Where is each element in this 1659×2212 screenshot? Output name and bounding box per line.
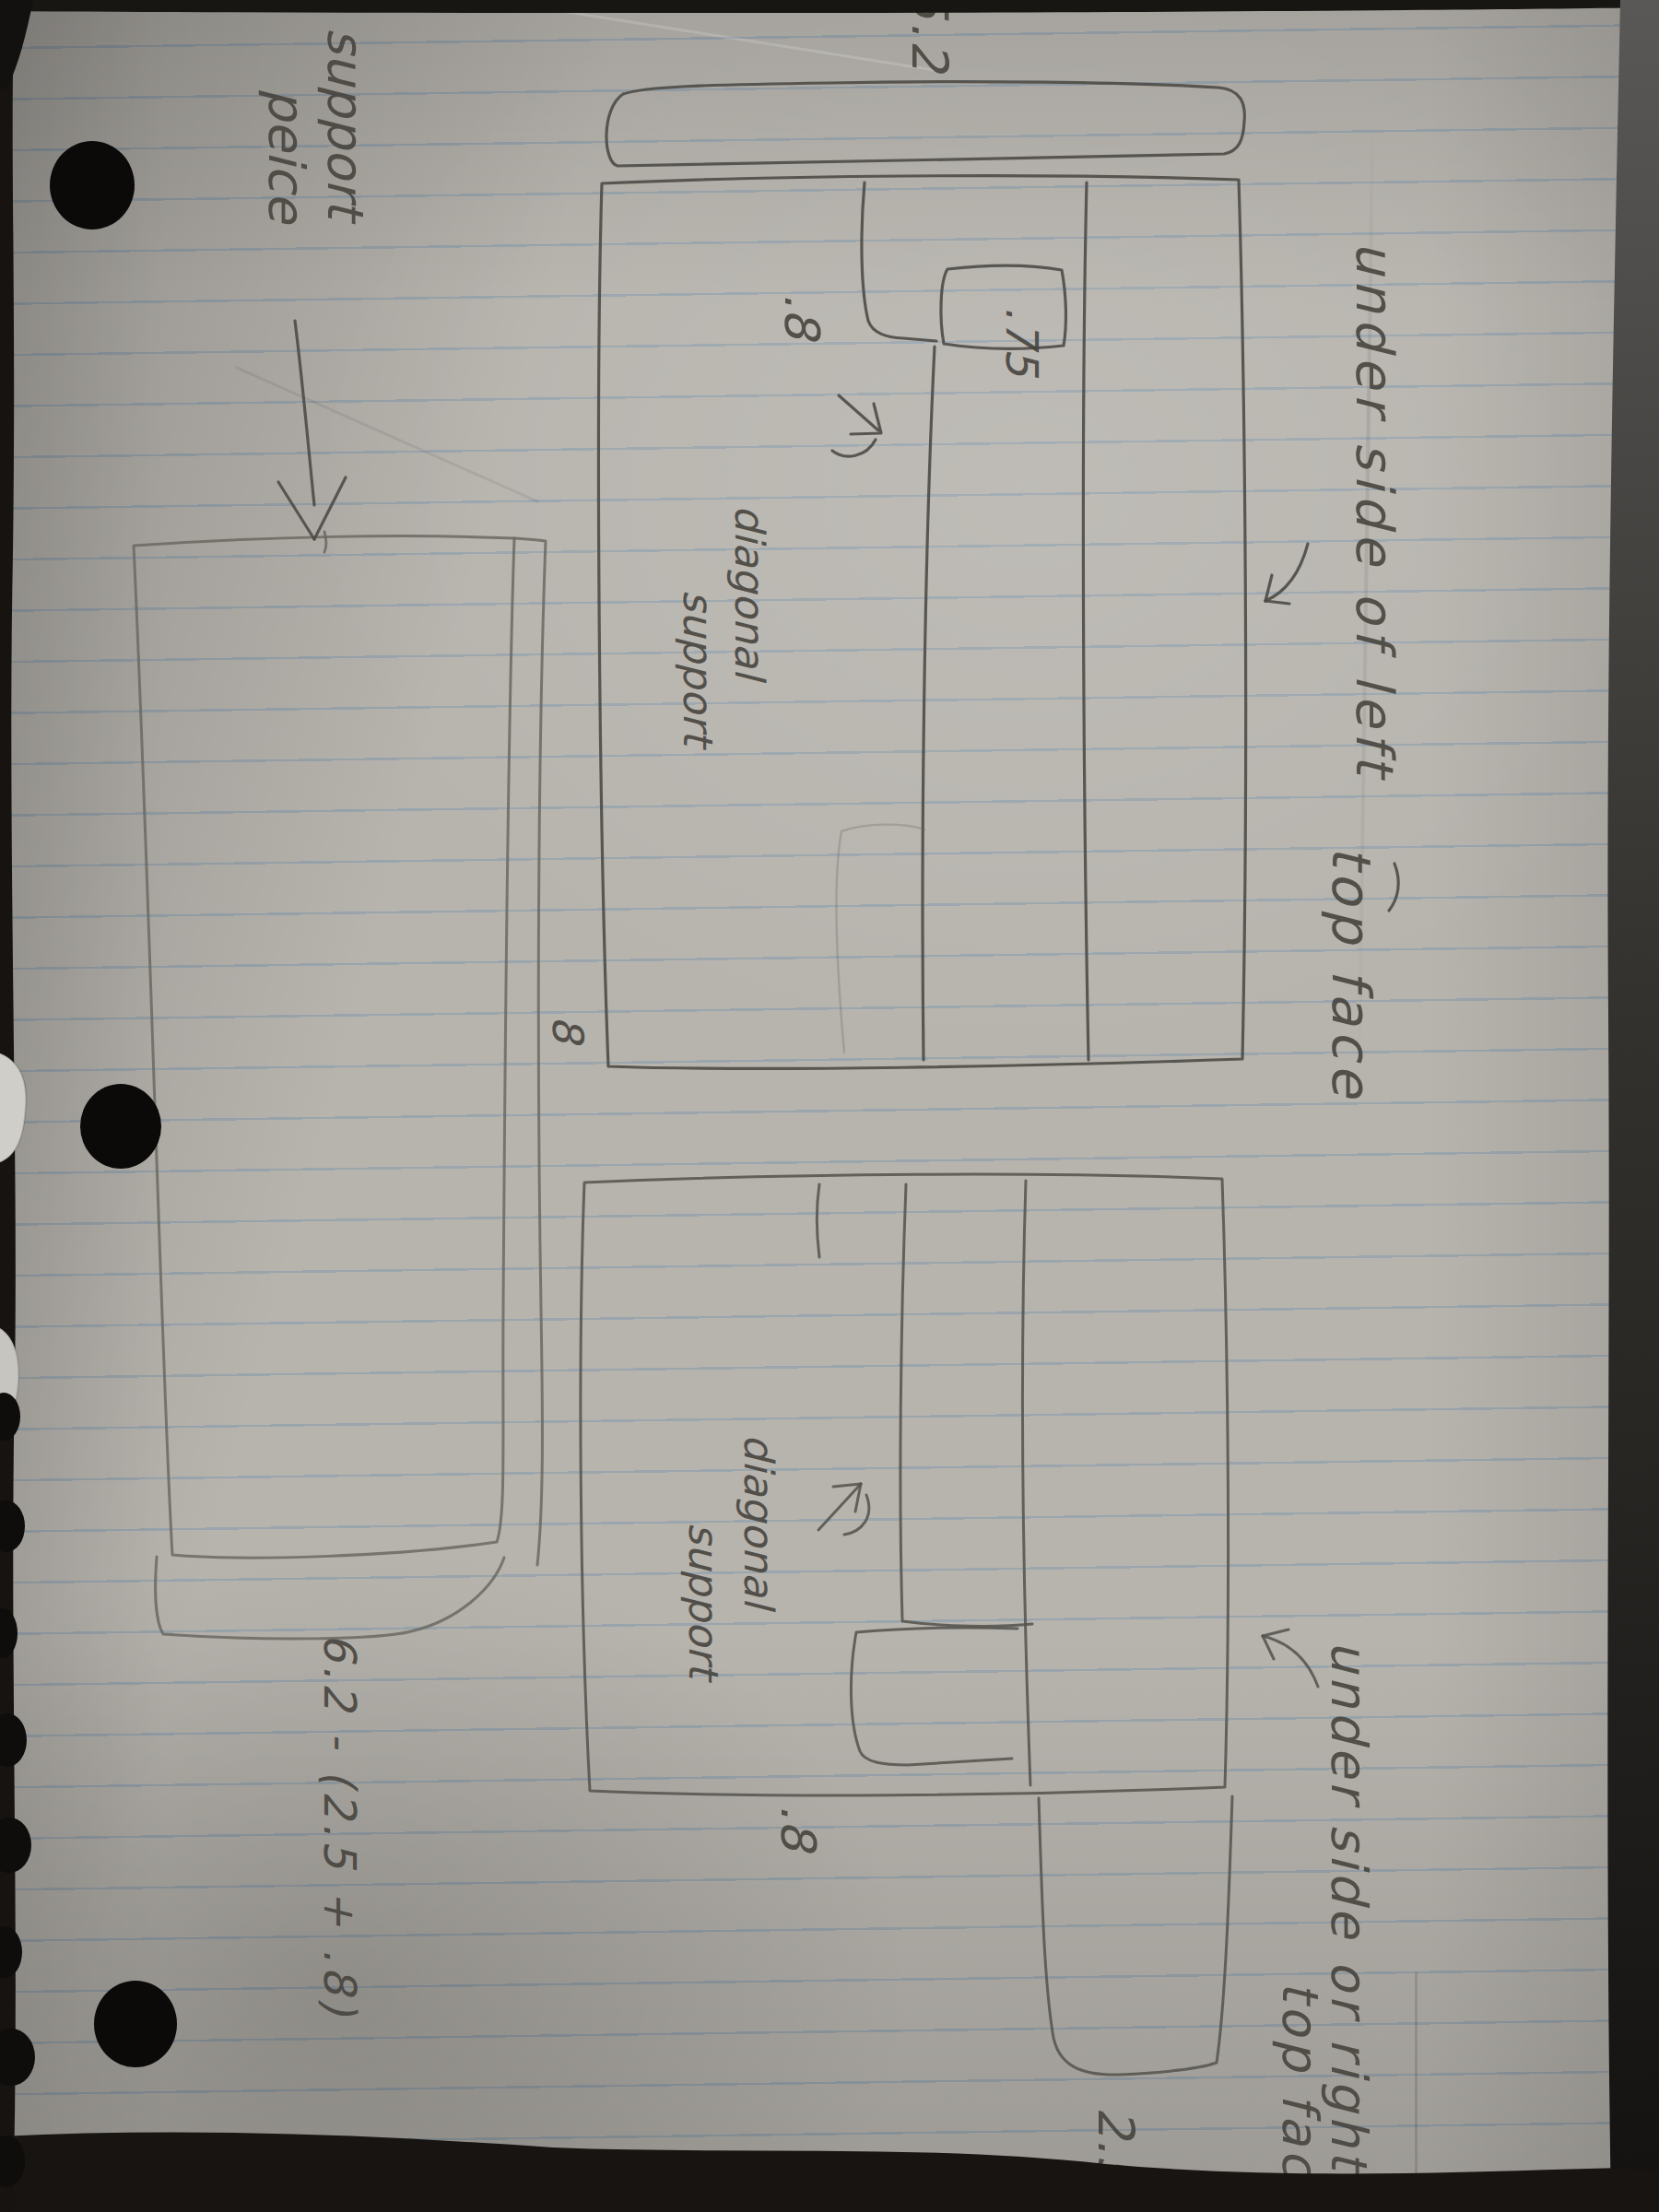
diagonal-support-label-1: diagonal	[726, 505, 773, 684]
apostrophe-mark	[1389, 864, 1398, 911]
notch-rect	[851, 1628, 1018, 1765]
tick-mark	[324, 532, 326, 552]
board-end-lip	[156, 1557, 504, 1639]
support-piece-label-1: support	[316, 28, 374, 225]
step-line	[902, 1621, 1032, 1626]
arrow	[832, 395, 881, 456]
board-outline	[134, 536, 514, 1558]
arrow	[278, 321, 346, 539]
torn-paper-tab	[0, 1053, 26, 1163]
photo-background-edge-top	[0, 0, 1659, 13]
right-divider-line	[1023, 1181, 1030, 1785]
hole-punch	[94, 1981, 177, 2067]
top-face-drawing: 5.2 .8 .75 8 diagonal support under side…	[543, 0, 1405, 1101]
photo-background-edge-right	[1607, 0, 1659, 2212]
sketch-layer: 5.2 .8 .75 8 diagonal support under side…	[0, 0, 1659, 2212]
photo-background-edge-bottom	[0, 2133, 1659, 2212]
tick-mark	[817, 1184, 819, 1257]
curved-arrow	[1265, 544, 1308, 604]
top-title-line2: top face	[1320, 846, 1382, 1101]
center-divider-line	[923, 347, 935, 1060]
diagonal-support-label-2: support	[675, 590, 722, 751]
notebook-photo: 5.2 .8 .75 8 diagonal support under side…	[0, 0, 1659, 2212]
curved-arrow	[1263, 1630, 1318, 1687]
dim-notch-depth-bottom: .8	[771, 1805, 826, 1854]
dim-notch-depth-top: .8	[774, 293, 829, 343]
board-edge-line	[514, 538, 546, 1565]
board-edge-strip	[606, 82, 1244, 166]
corner-notch	[0, 0, 33, 90]
support-piece-label-2: peice	[257, 88, 315, 225]
hole-punch	[80, 1084, 161, 1169]
arrow	[818, 1484, 869, 1535]
bottom-tab	[1039, 1796, 1232, 2075]
dim-notch-width: .75	[996, 306, 1048, 379]
dim-corner: 8	[543, 1016, 593, 1046]
bottom-face-drawing: diagonal support .8 2.5 under side or ri…	[581, 1174, 1378, 2212]
hole-punch	[50, 141, 135, 229]
support-piece-drawing: support peice 6.2 - (2.5 + .8)	[134, 28, 546, 2019]
notch-cutout	[862, 182, 936, 341]
diagonal-support-label-1: diagonal	[735, 1434, 782, 1613]
diagonal-support-label-2: support	[680, 1523, 727, 1684]
erased-outline	[836, 825, 924, 1053]
center-divider-line	[900, 1184, 906, 1619]
top-title-line1: under side of left	[1345, 241, 1405, 782]
right-divider-line	[1083, 182, 1088, 1060]
length-formula: 6.2 - (2.5 + .8)	[314, 1633, 366, 2019]
